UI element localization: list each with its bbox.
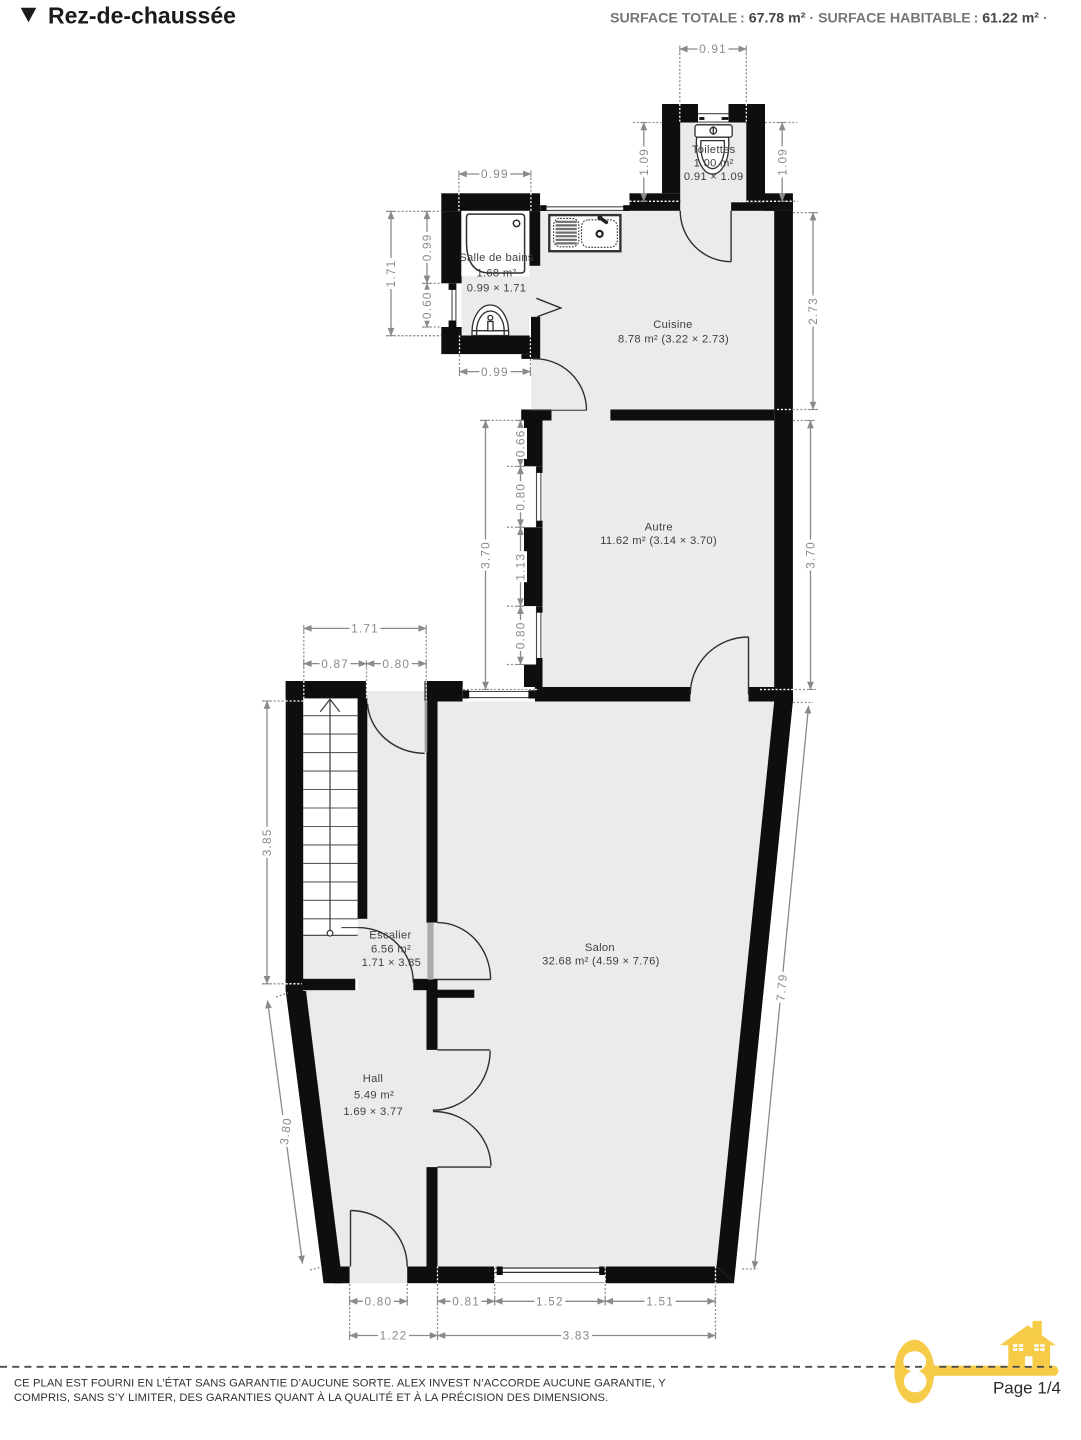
svg-text:SURFACE TOTALE : 67.78 m² · SU: SURFACE TOTALE : 67.78 m² · SURFACE HABI… <box>610 11 1048 27</box>
svg-text:3.83: 3.83 <box>563 1329 591 1343</box>
svg-text:Salon: Salon <box>585 942 615 954</box>
svg-text:Page 1/4: Page 1/4 <box>993 1379 1061 1398</box>
svg-text:1.22: 1.22 <box>380 1329 408 1343</box>
svg-text:0.87: 0.87 <box>321 657 349 671</box>
svg-text:1.71: 1.71 <box>384 260 398 288</box>
svg-text:0.99: 0.99 <box>481 167 509 181</box>
svg-text:0.91: 0.91 <box>699 42 727 56</box>
svg-text:0.80: 0.80 <box>382 657 410 671</box>
svg-text:Toilettes: Toilettes <box>692 144 736 156</box>
svg-text:Rez-de-chaussée: Rez-de-chaussée <box>48 3 236 29</box>
svg-text:0.99: 0.99 <box>420 234 434 262</box>
svg-text:7.79: 7.79 <box>773 973 790 1002</box>
svg-text:Autre: Autre <box>645 522 673 534</box>
svg-text:0.80: 0.80 <box>514 622 528 650</box>
svg-text:1.71: 1.71 <box>351 622 379 636</box>
svg-text:Salle de bains: Salle de bains <box>459 252 534 264</box>
svg-text:8.78 m² (3.22 × 2.73): 8.78 m² (3.22 × 2.73) <box>618 334 729 346</box>
svg-text:0.91 × 1.09: 0.91 × 1.09 <box>684 171 744 183</box>
svg-text:0.80: 0.80 <box>365 1295 393 1309</box>
svg-text:3.70: 3.70 <box>479 541 493 569</box>
svg-text:0.99 × 1.71: 0.99 × 1.71 <box>467 283 527 295</box>
svg-text:Hall: Hall <box>363 1073 383 1085</box>
svg-text:0.60: 0.60 <box>420 291 434 319</box>
svg-text:COMPRIS, SANS S’Y LIMITER, DES: COMPRIS, SANS S’Y LIMITER, DES GARANTIES… <box>14 1391 608 1404</box>
svg-text:1.09: 1.09 <box>637 148 651 176</box>
svg-text:1.00 m²: 1.00 m² <box>694 157 734 169</box>
svg-text:3.70: 3.70 <box>804 541 818 569</box>
svg-text:Cuisine: Cuisine <box>653 319 692 331</box>
svg-text:0.66: 0.66 <box>514 430 528 458</box>
svg-text:6.56 m²: 6.56 m² <box>371 944 411 956</box>
svg-text:0.81: 0.81 <box>452 1295 480 1309</box>
svg-text:3.85: 3.85 <box>260 829 274 857</box>
svg-text:1.68 m²: 1.68 m² <box>476 267 516 279</box>
svg-text:1.52: 1.52 <box>536 1295 564 1309</box>
svg-text:32.68 m² (4.59 × 7.76): 32.68 m² (4.59 × 7.76) <box>542 955 660 967</box>
svg-text:1.13: 1.13 <box>514 553 528 581</box>
svg-text:5.49 m²: 5.49 m² <box>354 1090 394 1102</box>
svg-text:1.69 × 3.77: 1.69 × 3.77 <box>343 1106 403 1118</box>
svg-text:Escalier: Escalier <box>369 929 411 941</box>
svg-text:2.73: 2.73 <box>806 297 820 325</box>
svg-text:CE PLAN EST FOURNI EN L’ÉTAT S: CE PLAN EST FOURNI EN L’ÉTAT SANS GARANT… <box>14 1377 666 1390</box>
svg-text:0.99: 0.99 <box>481 365 509 379</box>
svg-text:1.51: 1.51 <box>646 1295 674 1309</box>
svg-text:1.71 × 3.85: 1.71 × 3.85 <box>362 957 422 969</box>
svg-text:11.62 m² (3.14 × 3.70): 11.62 m² (3.14 × 3.70) <box>600 535 717 547</box>
svg-text:1.09: 1.09 <box>775 148 789 176</box>
svg-text:0.80: 0.80 <box>514 483 528 511</box>
